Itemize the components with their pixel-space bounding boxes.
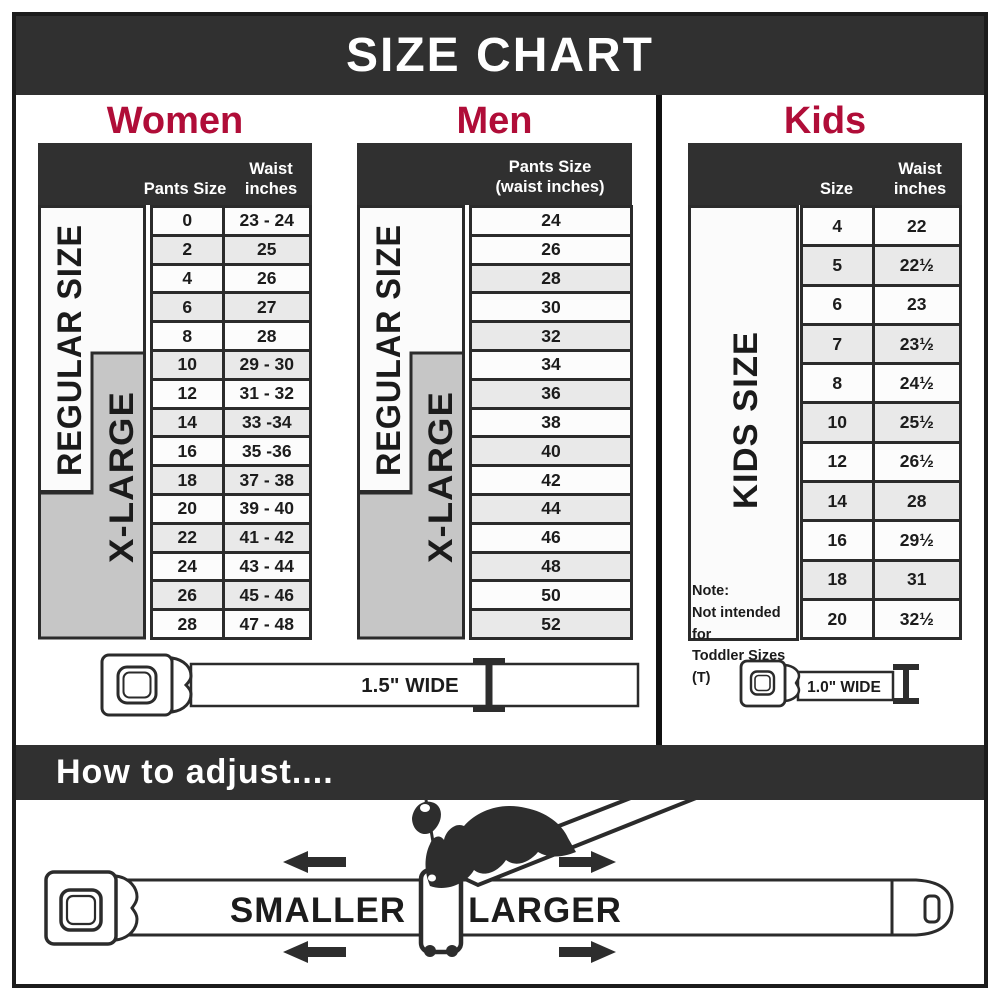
size-cell: 22 — [152, 523, 224, 552]
women-col2-header-line2: inches — [231, 180, 311, 200]
men-col-header-line2: (waist inches) — [468, 178, 632, 198]
size-cell: 8 — [152, 322, 224, 351]
size-row: 1025½ — [802, 403, 961, 442]
page-title: SIZE CHART — [16, 16, 984, 95]
size-row: 24 — [471, 207, 632, 236]
kids-size-key-graphic: KIDS SIZE — [688, 205, 800, 641]
size-cell: 8 — [802, 364, 874, 403]
size-row: 225 — [152, 235, 311, 264]
size-cell: 29 - 30 — [223, 350, 310, 379]
size-row: 2847 - 48 — [152, 610, 311, 639]
size-cell: 27 — [223, 293, 310, 322]
kids-belt-width-label: 1.0" WIDE — [807, 679, 881, 696]
size-cell: 6 — [152, 293, 224, 322]
size-cell: 2 — [152, 235, 224, 264]
size-row: 1029 - 30 — [152, 350, 311, 379]
size-cell: 18 — [152, 466, 224, 495]
size-row: 2241 - 42 — [152, 523, 311, 552]
men-size-table-body: 242628303234363840424446485052 — [471, 207, 632, 639]
size-cell: 12 — [802, 442, 874, 481]
size-cell: 24½ — [873, 364, 960, 403]
kids-col2-header-line1: Waist — [880, 160, 960, 180]
size-cell: 7 — [802, 324, 874, 363]
size-row: 26 — [471, 235, 632, 264]
chart-frame: SIZE CHART Women Men Kids Pants Size Wai… — [12, 12, 988, 988]
size-cell: 41 - 42 — [223, 523, 310, 552]
size-cell: 16 — [802, 521, 874, 560]
size-row: 46 — [471, 523, 632, 552]
men-regular-size-label: REGULAR SIZE — [370, 224, 408, 476]
arrow-left-bottom-icon — [283, 941, 346, 963]
size-row: 627 — [152, 293, 311, 322]
men-col-header-line1: Pants Size — [468, 158, 632, 178]
size-cell: 22 — [873, 207, 960, 246]
size-cell: 26 — [223, 264, 310, 293]
size-row: 30 — [471, 293, 632, 322]
size-row: 422 — [802, 207, 961, 246]
size-cell: 26 — [152, 581, 224, 610]
kids-size-table: 422522½623723½824½1025½1226½14281629½183… — [800, 205, 962, 640]
smaller-label: SMALLER — [230, 891, 406, 930]
size-cell: 48 — [471, 552, 632, 581]
size-row: 824½ — [802, 364, 961, 403]
men-xlarge-label: X-LARGE — [422, 391, 460, 563]
men-size-key-graphic: REGULAR SIZE X-LARGE — [357, 205, 469, 641]
size-cell: 22½ — [873, 246, 960, 285]
arrow-left-top-icon — [283, 851, 346, 873]
women-regular-size-label: REGULAR SIZE — [51, 224, 89, 476]
size-cell: 12 — [152, 379, 224, 408]
size-cell: 4 — [802, 207, 874, 246]
size-cell: 46 — [471, 523, 632, 552]
size-cell: 10 — [802, 403, 874, 442]
size-row: 1831 — [802, 560, 961, 599]
size-cell: 29½ — [873, 521, 960, 560]
kids-table-header: Size Waist inches — [688, 143, 962, 205]
women-section-heading: Women — [38, 100, 312, 143]
size-cell: 6 — [802, 285, 874, 324]
men-col-header: Pants Size (waist inches) — [468, 158, 632, 198]
size-cell: 45 - 46 — [223, 581, 310, 610]
size-row: 32 — [471, 322, 632, 351]
size-row: 522½ — [802, 246, 961, 285]
size-row: 1629½ — [802, 521, 961, 560]
kids-panel-divider — [656, 95, 662, 745]
size-cell: 5 — [802, 246, 874, 285]
size-cell: 42 — [471, 466, 632, 495]
size-row: 40 — [471, 437, 632, 466]
size-cell: 4 — [152, 264, 224, 293]
kids-belt-illustration: 1.0" WIDE — [736, 652, 966, 714]
size-row: 2443 - 44 — [152, 552, 311, 581]
size-cell: 33 -34 — [223, 408, 310, 437]
size-cell: 28 — [873, 482, 960, 521]
kids-col1-header: Size — [800, 180, 873, 200]
women-col2-header-line1: Waist — [231, 160, 311, 180]
size-cell: 44 — [471, 494, 632, 523]
size-cell: 14 — [152, 408, 224, 437]
size-cell: 23½ — [873, 324, 960, 363]
size-row: 2032½ — [802, 599, 961, 638]
size-cell: 47 - 48 — [223, 610, 310, 639]
men-section-heading: Men — [357, 100, 632, 143]
kids-width-measure-icon — [893, 664, 919, 704]
size-cell: 52 — [471, 610, 632, 639]
size-cell: 30 — [471, 293, 632, 322]
kids-section-heading: Kids — [688, 100, 962, 143]
size-row: 2645 - 46 — [152, 581, 311, 610]
size-row: 1433 -34 — [152, 408, 311, 437]
size-cell: 28 — [471, 264, 632, 293]
size-row: 1837 - 38 — [152, 466, 311, 495]
kids-buckle-latch-icon — [785, 665, 799, 701]
kids-note-line1: Note: — [692, 581, 796, 603]
size-cell: 23 — [873, 285, 960, 324]
size-cell: 25 — [223, 235, 310, 264]
larger-label: LARGER — [468, 891, 622, 930]
kids-size-table-body: 422522½623723½824½1025½1226½14281629½183… — [802, 207, 961, 639]
adult-belt-width-label: 1.5" WIDE — [361, 674, 458, 697]
size-row: 50 — [471, 581, 632, 610]
size-cell: 34 — [471, 350, 632, 379]
size-cell: 20 — [152, 494, 224, 523]
size-cell: 38 — [471, 408, 632, 437]
size-cell: 43 - 44 — [223, 552, 310, 581]
seatbelt-buckle-icon — [102, 655, 172, 715]
kids-note-line2: Not intended for — [692, 603, 796, 647]
adjust-illustration: SMALLER LARGER — [16, 800, 984, 984]
women-size-table: 023 - 242254266278281029 - 301231 - 3214… — [150, 205, 312, 640]
women-size-key-graphic: REGULAR SIZE X-LARGE — [38, 205, 150, 641]
size-cell: 25½ — [873, 403, 960, 442]
women-size-table-group: Pants Size Waist inches REGULAR SIZE X-L… — [38, 143, 312, 640]
size-row: 1635 -36 — [152, 437, 311, 466]
women-size-table-body: 023 - 242254266278281029 - 301231 - 3214… — [152, 207, 311, 639]
size-cell: 14 — [802, 482, 874, 521]
women-table-header: Pants Size Waist inches — [38, 143, 312, 205]
size-row: 623 — [802, 285, 961, 324]
size-cell: 40 — [471, 437, 632, 466]
kids-size-label: KIDS SIZE — [727, 331, 765, 509]
men-table-header: Pants Size (waist inches) — [357, 143, 632, 205]
size-cell: 26 — [471, 235, 632, 264]
size-cell: 31 - 32 — [223, 379, 310, 408]
size-cell: 28 — [152, 610, 224, 639]
size-cell: 10 — [152, 350, 224, 379]
men-size-table: 242628303234363840424446485052 — [469, 205, 633, 640]
size-chart-page: { "title": "SIZE CHART", "women": { "hea… — [0, 0, 1000, 1000]
size-cell: 0 — [152, 207, 224, 236]
size-row: 723½ — [802, 324, 961, 363]
size-cell: 36 — [471, 379, 632, 408]
size-row: 52 — [471, 610, 632, 639]
women-col1-header: Pants Size — [142, 180, 228, 200]
size-row: 38 — [471, 408, 632, 437]
size-cell: 24 — [152, 552, 224, 581]
size-cell: 39 - 40 — [223, 494, 310, 523]
adjust-seatbelt-buckle-icon — [46, 872, 137, 944]
size-row: 1226½ — [802, 442, 961, 481]
size-row: 1231 - 32 — [152, 379, 311, 408]
size-cell: 16 — [152, 437, 224, 466]
size-row: 828 — [152, 322, 311, 351]
size-row: 426 — [152, 264, 311, 293]
size-row: 34 — [471, 350, 632, 379]
size-cell: 32½ — [873, 599, 960, 638]
kids-seatbelt-buckle-icon — [741, 661, 785, 706]
adjust-belt-tip — [892, 880, 952, 935]
adult-belt-illustration: 1.5" WIDE — [98, 650, 648, 720]
size-row: 1428 — [802, 482, 961, 521]
kids-size-table-group: Size Waist inches KIDS SIZE Note: Not in… — [688, 143, 962, 640]
buckle-latch-icon — [172, 658, 191, 712]
size-row: 48 — [471, 552, 632, 581]
arrow-right-bottom-icon — [559, 941, 616, 963]
size-row: 023 - 24 — [152, 207, 311, 236]
women-xlarge-label: X-LARGE — [103, 391, 141, 563]
size-cell: 23 - 24 — [223, 207, 310, 236]
size-cell: 28 — [223, 322, 310, 351]
size-cell: 20 — [802, 599, 874, 638]
size-row: 28 — [471, 264, 632, 293]
size-cell: 31 — [873, 560, 960, 599]
women-col2-header: Waist inches — [231, 160, 311, 200]
size-row: 42 — [471, 466, 632, 495]
size-cell: 26½ — [873, 442, 960, 481]
size-row: 2039 - 40 — [152, 494, 311, 523]
size-cell: 18 — [802, 560, 874, 599]
men-size-table-group: Pants Size (waist inches) REGULAR SIZE X… — [357, 143, 632, 640]
kids-col2-header: Waist inches — [880, 160, 960, 200]
kids-col2-header-line2: inches — [880, 180, 960, 200]
size-cell: 50 — [471, 581, 632, 610]
size-cell: 37 - 38 — [223, 466, 310, 495]
size-cell: 35 -36 — [223, 437, 310, 466]
size-cell: 32 — [471, 322, 632, 351]
size-cell: 24 — [471, 207, 632, 236]
size-row: 36 — [471, 379, 632, 408]
size-row: 44 — [471, 494, 632, 523]
adjust-section-heading: How to adjust.... — [16, 745, 984, 800]
